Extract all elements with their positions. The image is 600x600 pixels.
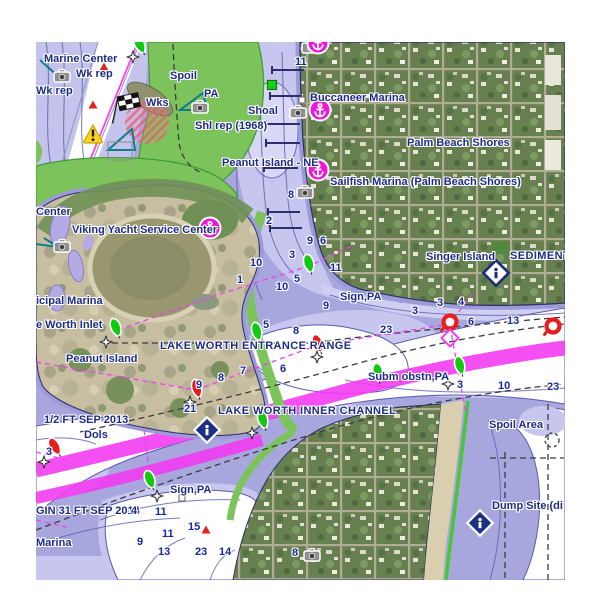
marina-anchor-icon[interactable] <box>200 218 221 239</box>
small-marker-icon[interactable] <box>179 495 185 501</box>
marina-anchor-icon[interactable] <box>310 100 331 121</box>
marina-anchor-icon[interactable] <box>308 42 329 54</box>
photo-camera-icon[interactable] <box>54 240 70 253</box>
small-marker-icon[interactable] <box>299 97 305 103</box>
marina-anchor-icon[interactable] <box>308 160 329 181</box>
photo-camera-icon[interactable] <box>304 549 320 562</box>
red-ring-buoy-icon[interactable] <box>545 320 560 335</box>
photo-camera-icon[interactable] <box>290 106 306 119</box>
land-palm-beach-shores <box>300 42 565 305</box>
nautical-chart-map[interactable]: Marine CenterWk repWk repSpoilWksPAShl r… <box>36 42 565 580</box>
green-square-buoy-icon[interactable] <box>268 81 277 90</box>
photo-camera-icon[interactable] <box>297 186 313 199</box>
chartplotter-screen: Marine CenterWk repWk repSpoilWksPAShl r… <box>0 0 600 600</box>
red-ring-buoy-icon[interactable] <box>442 316 457 331</box>
photo-camera-icon[interactable] <box>54 70 70 83</box>
land-peanut-island <box>36 185 265 435</box>
photo-camera-icon[interactable] <box>192 101 208 114</box>
chart-canvas <box>36 42 565 580</box>
